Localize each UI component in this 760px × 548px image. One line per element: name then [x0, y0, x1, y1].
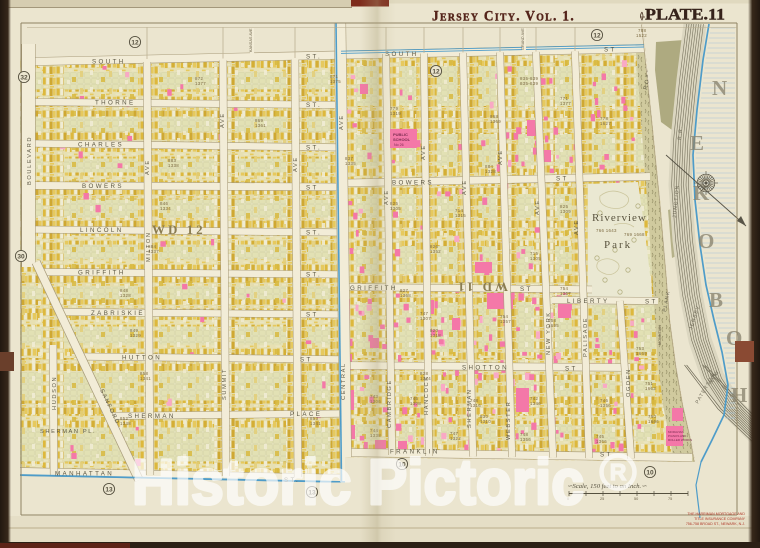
- svg-text:1377: 1377: [560, 101, 571, 106]
- svg-text:1522: 1522: [636, 33, 647, 38]
- svg-text:CHARLES: CHARLES: [78, 142, 124, 149]
- svg-text:1369: 1369: [490, 119, 501, 124]
- svg-text:1367: 1367: [560, 291, 571, 296]
- svg-text:1309: 1309: [560, 209, 571, 214]
- svg-text:1348: 1348: [120, 421, 131, 426]
- svg-text:ROLLER WORKS: ROLLER WORKS: [668, 438, 692, 442]
- svg-text:1334: 1334: [160, 206, 171, 211]
- svg-text:1324: 1324: [420, 376, 431, 381]
- svg-text:1366: 1366: [596, 439, 607, 444]
- svg-text:SHERMAN: SHERMAN: [128, 413, 176, 420]
- svg-text:1322: 1322: [450, 436, 461, 441]
- svg-text:1341: 1341: [140, 376, 151, 381]
- svg-text:25: 25: [600, 497, 604, 501]
- svg-text:K: K: [693, 181, 710, 205]
- svg-text:32: 32: [20, 74, 28, 81]
- svg-text:ST.: ST.: [306, 145, 322, 152]
- svg-text:1329: 1329: [130, 333, 141, 338]
- svg-text:1356: 1356: [520, 437, 531, 442]
- svg-text:1307: 1307: [420, 316, 431, 321]
- svg-text:THE HARRIMAN MORTGAGE AND: THE HARRIMAN MORTGAGE AND: [687, 512, 745, 516]
- svg-text:75: 75: [668, 497, 672, 501]
- svg-text:1346: 1346: [530, 401, 541, 406]
- svg-text:ST: ST: [300, 357, 313, 364]
- svg-text:SOUTH: SOUTH: [92, 59, 126, 66]
- svg-text:HUTTON: HUTTON: [122, 355, 162, 362]
- svg-text:GRIFFITH: GRIFFITH: [78, 270, 126, 277]
- svg-text:1318: 1318: [430, 333, 441, 338]
- svg-text:R.R.: R.R.: [677, 126, 684, 140]
- svg-text:SHERMAN: SHERMAN: [467, 388, 473, 428]
- svg-text:B: B: [709, 288, 723, 312]
- svg-text:SUMMIT: SUMMIT: [222, 368, 228, 400]
- svg-text:CENTRAL: CENTRAL: [341, 362, 347, 400]
- svg-text:Jersey City. Vol. 1.: Jersey City. Vol. 1.: [432, 9, 575, 25]
- svg-text:AVE: AVE: [498, 149, 504, 165]
- svg-text:1305: 1305: [530, 256, 541, 261]
- svg-text:13: 13: [105, 486, 113, 493]
- svg-text:12: 12: [131, 39, 139, 46]
- svg-text:H: H: [731, 383, 747, 407]
- svg-text:HANCOCK: HANCOCK: [424, 375, 430, 415]
- svg-text:WD 11: WD 11: [455, 280, 508, 295]
- svg-text:ST: ST: [306, 312, 319, 319]
- svg-text:PLATE.11: PLATE.11: [645, 7, 725, 24]
- svg-text:50: 50: [634, 497, 638, 501]
- svg-text:ST.: ST.: [306, 102, 322, 109]
- svg-text:ST: ST: [556, 176, 569, 183]
- svg-text:AVE: AVE: [220, 112, 226, 128]
- svg-text:1666: 1666: [648, 419, 659, 424]
- svg-text:AVE: AVE: [145, 159, 151, 175]
- svg-text:835-839: 835-839: [520, 81, 538, 86]
- svg-text:MOUNTAIN: MOUNTAIN: [658, 325, 662, 345]
- svg-text:TITLE INSURANCE COMPANY: TITLE INSURANCE COMPANY: [694, 517, 745, 521]
- svg-text:1337: 1337: [148, 249, 159, 254]
- svg-text:1663: 1663: [645, 386, 656, 391]
- svg-text:BOWERS: BOWERS: [82, 183, 124, 190]
- svg-text:LINCOLN: LINCOLN: [80, 227, 124, 234]
- svg-text:1316: 1316: [470, 403, 481, 408]
- svg-text:ZABRISKIE: ZABRISKIE: [91, 310, 145, 317]
- svg-text:AVE: AVE: [293, 156, 299, 172]
- svg-text:30: 30: [17, 253, 25, 260]
- svg-text:1308: 1308: [410, 401, 421, 406]
- svg-text:O: O: [698, 229, 714, 253]
- svg-text:E: E: [690, 131, 704, 155]
- svg-text:BOWERS: BOWERS: [392, 180, 434, 187]
- svg-text:1328: 1328: [120, 293, 131, 298]
- svg-text:12: 12: [432, 68, 440, 75]
- svg-text:KANSAS AVE: KANSAS AVE: [249, 28, 253, 52]
- svg-text:Historic Pictoric: Historic Pictoric: [132, 446, 584, 518]
- svg-text:1361: 1361: [255, 123, 266, 128]
- svg-text:PALISADE: PALISADE: [583, 317, 589, 357]
- svg-text:AVE: AVE: [462, 179, 468, 195]
- svg-text:1357: 1357: [500, 319, 511, 324]
- svg-text:Park: Park: [604, 239, 632, 251]
- svg-text:WD 12: WD 12: [152, 222, 206, 237]
- svg-text:1368: 1368: [400, 293, 411, 298]
- svg-text:ST: ST: [520, 286, 533, 293]
- svg-text:Riverview: Riverview: [592, 212, 647, 224]
- svg-text:ST.: ST.: [306, 230, 322, 237]
- svg-text:10: 10: [646, 469, 654, 476]
- svg-text:AVE: AVE: [535, 199, 541, 215]
- svg-text:SHOTTON: SHOTTON: [462, 365, 509, 372]
- svg-text:ST.: ST.: [306, 54, 322, 61]
- svg-text:1627: 1627: [600, 121, 611, 126]
- svg-text:ST: ST: [645, 299, 658, 306]
- svg-text:1356: 1356: [600, 403, 611, 408]
- svg-text:1315: 1315: [455, 213, 466, 218]
- svg-text:769 1668: 769 1668: [624, 232, 645, 237]
- svg-text:1377: 1377: [195, 81, 206, 86]
- svg-text:HUDSON: HUDSON: [52, 376, 58, 410]
- svg-text:WEBSTER: WEBSTER: [506, 401, 512, 440]
- svg-text:1341: 1341: [310, 421, 321, 426]
- svg-text:MANHATTAN: MANHATTAN: [55, 471, 114, 478]
- svg-text:1375: 1375: [330, 79, 341, 84]
- svg-text:AVE: AVE: [339, 114, 345, 130]
- svg-text:R: R: [610, 459, 627, 485]
- svg-text:1338: 1338: [168, 163, 179, 168]
- svg-text:1352: 1352: [430, 249, 441, 254]
- svg-text:ST: ST: [604, 47, 617, 54]
- svg-text:12: 12: [593, 32, 601, 39]
- svg-text:1335: 1335: [345, 161, 356, 166]
- svg-text:1310: 1310: [480, 419, 491, 424]
- svg-text:GRAND AVE: GRAND AVE: [521, 28, 525, 50]
- svg-text:756-758 BROAD ST., NEWARK, N.J: 756-758 BROAD ST., NEWARK, N.J.: [686, 522, 745, 526]
- svg-text:ST: ST: [565, 366, 578, 373]
- svg-text:1328: 1328: [485, 169, 496, 174]
- svg-text:SHERMAN PL.: SHERMAN PL.: [40, 429, 96, 435]
- svg-text:THORNE: THORNE: [95, 100, 136, 107]
- svg-text:BOULEVARD: BOULEVARD: [27, 136, 33, 185]
- svg-text:766 1643: 766 1643: [596, 228, 617, 233]
- svg-text:OGDEN: OGDEN: [626, 368, 632, 397]
- svg-text:1695: 1695: [548, 323, 559, 328]
- svg-text:LIBERTY: LIBERTY: [567, 298, 609, 305]
- svg-text:ST: ST: [306, 185, 319, 192]
- svg-text:AVE: AVE: [421, 144, 427, 160]
- svg-text:1669: 1669: [636, 351, 647, 356]
- svg-text:N: N: [712, 76, 727, 100]
- svg-text:ST.: ST.: [306, 272, 322, 279]
- svg-text:AVE: AVE: [574, 219, 580, 235]
